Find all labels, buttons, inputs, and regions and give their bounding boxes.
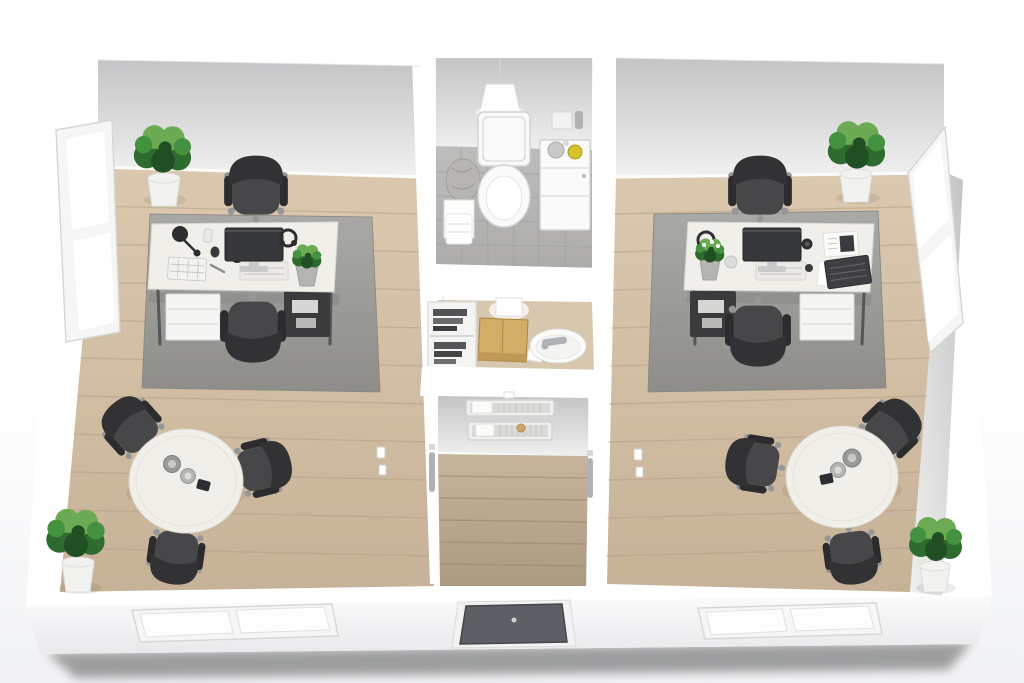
yellow-bottle xyxy=(568,145,582,159)
office-chair-bottom xyxy=(220,293,286,363)
room-office-right xyxy=(607,58,963,596)
towel-table xyxy=(444,200,474,244)
keyhole xyxy=(512,618,517,623)
meeting-table xyxy=(786,426,898,528)
front-window-left-pair xyxy=(132,604,338,642)
cup-on-shelf xyxy=(517,424,525,432)
room-hallway xyxy=(429,392,593,586)
entry-door xyxy=(452,600,576,648)
jar xyxy=(725,256,737,268)
room-office-left xyxy=(46,60,434,594)
window-left-wall xyxy=(56,120,120,342)
office-chair-top xyxy=(728,156,792,223)
north-wall-face xyxy=(616,58,944,176)
cup xyxy=(181,469,196,484)
carafe xyxy=(164,456,181,473)
cup xyxy=(831,463,846,478)
light-switch xyxy=(377,447,385,458)
mouse xyxy=(805,264,813,272)
hall-wall-lamp xyxy=(504,392,514,398)
wall-dispenser xyxy=(552,111,583,129)
drawer-unit xyxy=(800,294,854,340)
mouse xyxy=(211,247,220,258)
floorplan-stage xyxy=(0,0,1024,683)
light-switch xyxy=(634,449,642,460)
carafe xyxy=(843,449,861,467)
wall-band-bath-storage xyxy=(424,264,604,300)
light-switch xyxy=(636,467,643,477)
bathroom-cabinet xyxy=(540,140,590,230)
room-bathroom xyxy=(436,58,592,268)
light-switch xyxy=(379,465,386,475)
drawer-unit xyxy=(166,294,220,340)
keyboard xyxy=(167,257,206,281)
floorplan-render xyxy=(0,0,1024,683)
shelf-unit xyxy=(428,302,476,368)
notepad-calculator xyxy=(823,231,859,257)
office-chair-top xyxy=(224,156,288,223)
front-window-right-pair xyxy=(698,603,882,639)
laundry-bag xyxy=(446,159,480,201)
room-storage xyxy=(428,298,594,372)
cardboard-box xyxy=(478,318,528,362)
wall-shelf-lower xyxy=(468,422,552,440)
under-desk-shelf xyxy=(284,291,330,337)
jar xyxy=(548,142,564,158)
speaker-puck xyxy=(802,239,813,250)
smartphone xyxy=(203,229,213,243)
office-chair-bottom xyxy=(725,297,791,367)
wall-shelf-upper xyxy=(466,400,554,416)
